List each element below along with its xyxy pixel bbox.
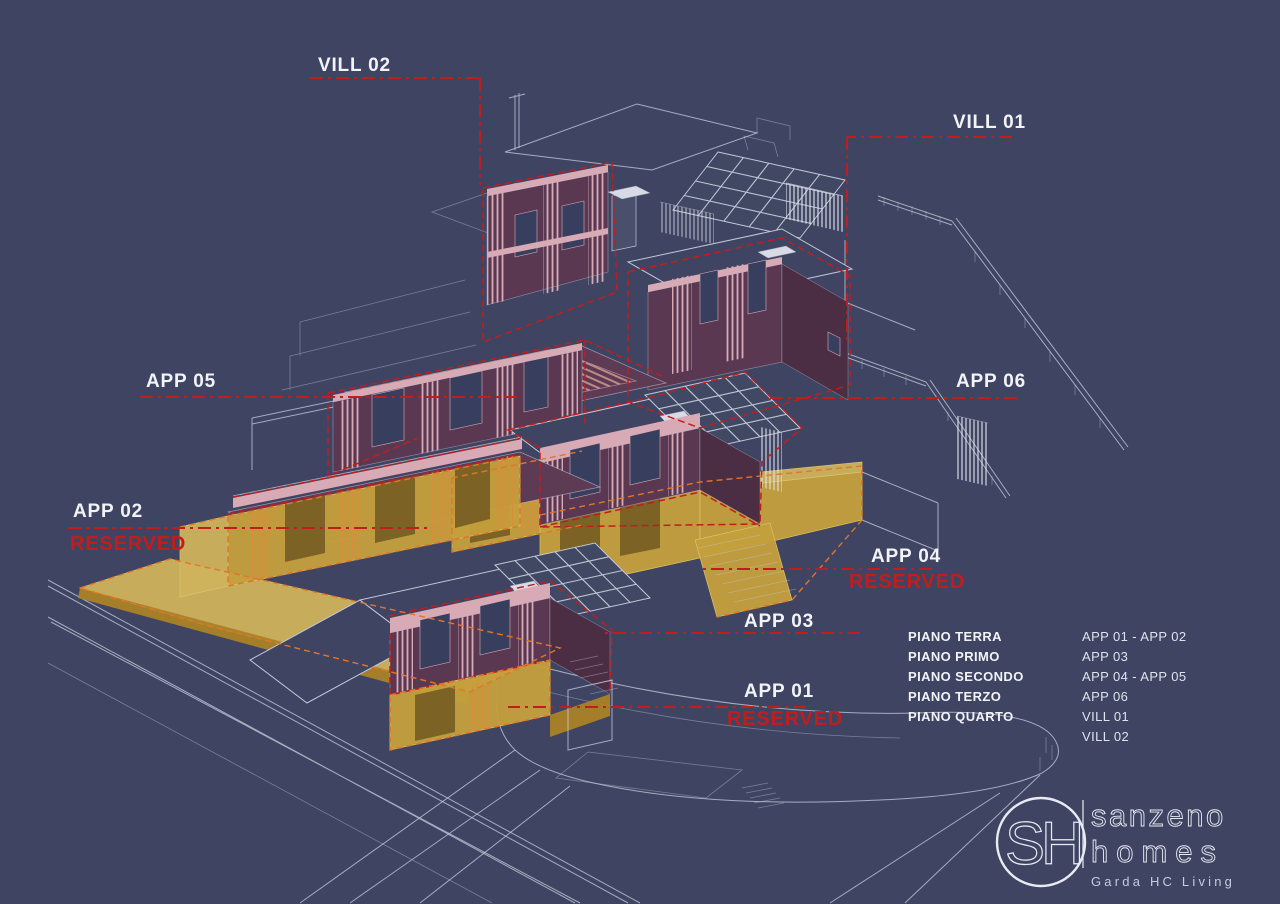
legend-units: VILL 01 xyxy=(1082,707,1129,727)
building-illustration: .w{fill:none;stroke:#c2c8d8;stroke-opaci… xyxy=(0,0,1280,904)
legend-floor xyxy=(908,727,1082,747)
legend-row: PIANO SECONDO APP 04 - APP 05 xyxy=(908,667,1187,687)
legend-row: PIANO PRIMO APP 03 xyxy=(908,647,1187,667)
unit-label-vill01[interactable]: VILL 01 xyxy=(953,112,1026,134)
legend-row: PIANO TERZO APP 06 xyxy=(908,687,1187,707)
legend-floor: PIANO TERZO xyxy=(908,687,1082,707)
unit-label-app04[interactable]: APP 04 xyxy=(871,546,941,568)
unit-label-app01[interactable]: APP 01 xyxy=(744,681,814,703)
legend-units: APP 06 xyxy=(1082,687,1128,707)
legend-units: APP 01 - APP 02 xyxy=(1082,627,1187,647)
reserved-badge-app01: RESERVED xyxy=(727,708,843,731)
brand-logo: SH sanzeno homes Garda HC Living xyxy=(975,786,1275,902)
legend-floor: PIANO SECONDO xyxy=(908,667,1082,687)
legend-floor: PIANO PRIMO xyxy=(908,647,1082,667)
legend-row: PIANO QUARTO VILL 01 xyxy=(908,707,1187,727)
logo-brand-line2: homes xyxy=(1091,834,1224,869)
legend-row: PIANO TERRA APP 01 - APP 02 xyxy=(908,627,1187,647)
legend-units: APP 04 - APP 05 xyxy=(1082,667,1187,687)
unit-label-app06[interactable]: APP 06 xyxy=(956,371,1026,393)
logo-brand-line1: sanzeno xyxy=(1091,798,1226,833)
legend-units: VILL 02 xyxy=(1082,727,1129,747)
logo-monogram: SH xyxy=(1005,810,1080,877)
unit-label-vill02[interactable]: VILL 02 xyxy=(318,55,391,77)
unit-label-app03[interactable]: APP 03 xyxy=(744,611,814,633)
legend-floor: PIANO QUARTO xyxy=(908,707,1082,727)
logo-tagline: Garda HC Living xyxy=(1091,874,1235,889)
site-availability-plan: .w{fill:none;stroke:#c2c8d8;stroke-opaci… xyxy=(0,0,1280,904)
reserved-badge-app02: RESERVED xyxy=(70,533,186,556)
legend-floor: PIANO TERRA xyxy=(908,627,1082,647)
floor-legend: PIANO TERRA APP 01 - APP 02 PIANO PRIMO … xyxy=(908,627,1187,747)
unit-label-app02[interactable]: APP 02 xyxy=(73,501,143,523)
bottom-buildings xyxy=(78,437,650,750)
legend-row: VILL 02 xyxy=(908,727,1187,747)
unit-label-app05[interactable]: APP 05 xyxy=(146,371,216,393)
reserved-badge-app04: RESERVED xyxy=(849,571,965,594)
legend-units: APP 03 xyxy=(1082,647,1128,667)
